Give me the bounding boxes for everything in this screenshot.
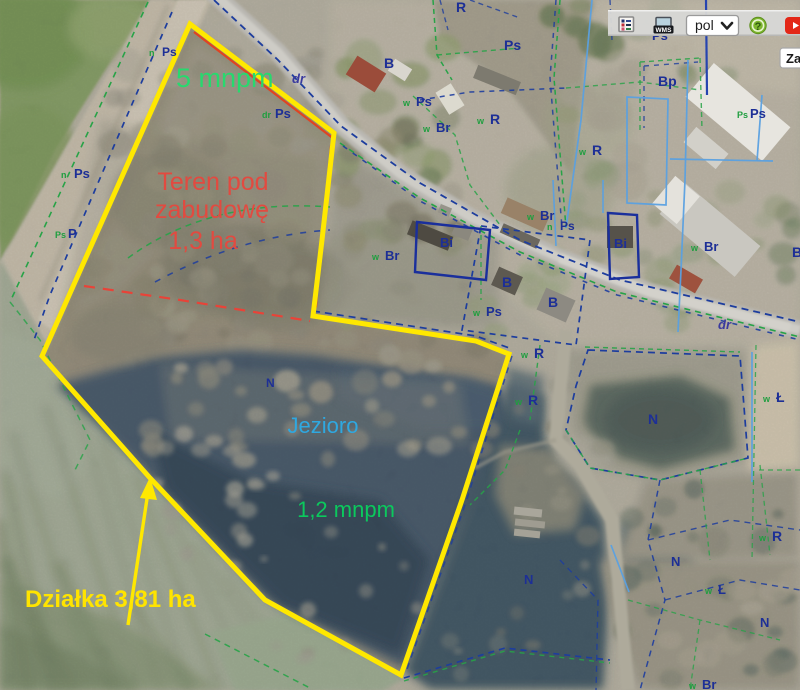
svg-text:Za: Za [786,51,800,66]
svg-text:1,3 ha: 1,3 ha [168,227,238,255]
svg-text:B: B [792,244,800,260]
svg-text:w: w [371,252,380,262]
svg-text:B: B [502,274,512,290]
svg-text:Jezioro: Jezioro [288,413,359,438]
svg-text:Ł: Ł [776,389,785,405]
svg-text:Ps: Ps [74,166,90,181]
svg-text:w: w [402,98,411,108]
svg-text:w: w [472,308,481,318]
svg-text:Br: Br [702,677,716,690]
svg-text:w: w [578,147,587,157]
svg-text:Ps: Ps [416,94,432,109]
svg-text:w: w [762,394,771,404]
svg-text:zabudowę: zabudowę [155,196,269,224]
svg-text:R: R [592,142,602,158]
svg-text:N: N [648,411,658,427]
svg-text:w: w [688,681,697,690]
svg-text:dr: dr [718,317,732,332]
svg-text:N: N [266,376,275,390]
svg-text:Ps: Ps [560,219,575,233]
svg-text:R: R [456,0,466,15]
svg-text:R: R [528,392,538,408]
svg-text:w: w [704,586,713,596]
svg-text:Bi: Bi [440,235,453,250]
svg-text:Ps: Ps [55,230,66,240]
svg-text:w: w [520,350,529,360]
svg-text:n: n [149,48,155,58]
svg-text:N: N [524,572,533,587]
svg-text:R: R [490,111,500,127]
svg-text:R: R [772,528,782,544]
svg-text:n: n [61,170,67,180]
svg-text:Br: Br [385,248,399,263]
svg-text:w: w [690,243,699,253]
svg-text:1,2 mnpm: 1,2 mnpm [297,497,395,522]
svg-text:Ps: Ps [504,37,521,53]
svg-text:Teren pod: Teren pod [157,168,268,196]
svg-text:n: n [547,222,553,232]
svg-text:Działka 3,81 ha: Działka 3,81 ha [25,586,196,613]
svg-text:Ps: Ps [737,110,748,120]
svg-text:Ps: Ps [750,106,766,121]
svg-text:w: w [476,116,485,126]
svg-text:WMS: WMS [656,27,673,34]
svg-text:Ps: Ps [162,45,177,59]
svg-text:N: N [760,615,769,630]
svg-text:Br: Br [436,120,450,135]
svg-text:Ps: Ps [486,304,502,319]
svg-text:Bp: Bp [658,73,677,89]
svg-text:dr: dr [292,71,306,86]
svg-text:R: R [534,345,544,361]
svg-text:Ps: Ps [275,106,291,121]
svg-text:?: ? [755,21,762,33]
svg-text:w: w [514,397,523,407]
svg-text:P: P [68,226,77,241]
svg-text:5 mnpm: 5 mnpm [176,63,274,93]
svg-text:Ł: Ł [718,582,726,597]
svg-text:Bi: Bi [614,236,627,251]
svg-text:w: w [758,533,767,543]
svg-text:pol: pol [695,17,714,33]
svg-text:Br: Br [704,239,718,254]
svg-text:B: B [384,55,394,71]
svg-text:dr: dr [262,110,271,120]
svg-text:B: B [548,294,558,310]
svg-text:Br: Br [540,208,554,223]
svg-text:N: N [671,554,680,569]
svg-text:w: w [526,212,535,222]
svg-text:w: w [422,124,431,134]
